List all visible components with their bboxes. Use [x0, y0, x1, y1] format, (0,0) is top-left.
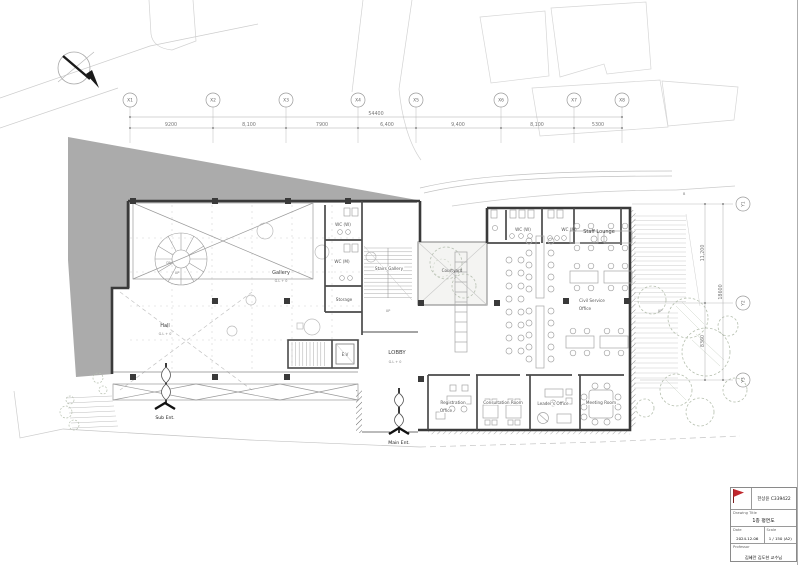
professor-label: Professor: [733, 545, 750, 549]
waiting-chairs-a: [506, 257, 524, 354]
grid-bubble-y2: Y2: [741, 300, 747, 307]
site-gray-mass: [68, 137, 417, 377]
label-lobby-level: G.L + 0: [389, 360, 402, 364]
label-civil-service-2: Office: [579, 306, 592, 311]
label-east-stair-up: UP: [658, 309, 663, 313]
student-name: 한상윤 C339422: [752, 488, 796, 509]
label-spiral-dn: DN: [166, 261, 172, 265]
dim-y-overall: 18600: [718, 284, 724, 299]
dim-x4-x5: 6,400: [380, 122, 394, 128]
label-wc-m-right: WC (M): [561, 227, 577, 232]
sub-entrance-doors: [162, 363, 171, 403]
label-consultation: Consultation Room: [483, 400, 523, 405]
grid-bubble-y1: Y1: [741, 201, 747, 208]
label-spiral-up: UP: [175, 271, 180, 275]
label-courtyard: Courtyard: [442, 268, 463, 273]
trees-east-hatch: [666, 302, 724, 400]
date-value: 2024.12.06: [731, 536, 764, 541]
floor-plan-canvas: X1 X2 X3 X4 X5 X6 X7 X8 9200 8,100 7900 …: [0, 0, 800, 565]
exterior-steps-east-upper: [634, 214, 700, 306]
label-hall: Hall: [160, 323, 170, 329]
label-gallery-level: G.L + 0: [275, 279, 288, 283]
label-storage: Storage: [336, 297, 353, 302]
label-lobby: LOBBY: [388, 350, 406, 356]
label-wc-w-right: WC (W): [515, 227, 531, 232]
exterior-steps-east-lower: [634, 313, 678, 388]
grid-bubble-x1: X1: [127, 98, 133, 104]
red-flag-icon: [731, 488, 745, 504]
entry-canopy: [113, 372, 358, 400]
grid-bubble-x4: X4: [355, 98, 361, 104]
grid-bubble-y3: Y3: [741, 377, 747, 384]
dim-x-overall: 54400: [368, 111, 383, 117]
sub-entrance-chevron: [155, 403, 175, 409]
drawing-sheet: X1 X2 X3 X4 X5 X6 X7 X8 9200 8,100 7900 …: [0, 0, 800, 565]
grid-bubble-x5: X5: [413, 98, 419, 104]
dim-x6-x7: 8,100: [530, 122, 544, 128]
road-label: B: [683, 192, 686, 196]
grid-bubble-x7: X7: [571, 98, 577, 104]
scale-value: 1 / 150 (A2): [765, 536, 797, 541]
north-arrow-icon: [58, 52, 99, 88]
label-registration-1: Registration: [440, 400, 466, 405]
dim-x2-x3: 8,100: [242, 122, 256, 128]
label-stairsgallery-up: UP: [386, 309, 391, 313]
hall-void-dashes: [120, 292, 252, 390]
label-stairs-gallery: Stairs Gallery: [375, 266, 404, 271]
dim-x7-x8: 5300: [592, 122, 604, 128]
label-meeting: Meeting Room: [586, 400, 616, 405]
dim-y2-y3: 8360: [700, 335, 706, 347]
label-civil-service-1: Civil Service: [579, 298, 605, 303]
title-block: 한상윤 C339422 Drawing Title 1층 평면도 Date 20…: [730, 487, 797, 562]
label-ev: E.V: [342, 352, 349, 357]
main-entrance-doors: [395, 388, 404, 433]
grid-bubble-x6: X6: [498, 98, 504, 104]
professor-value: 김혜란 김도현 교수님: [731, 555, 796, 561]
grid-bubble-x2: X2: [210, 98, 216, 104]
leaders-furniture: [538, 389, 573, 424]
school-logo: [731, 488, 752, 509]
walls-outer: [112, 201, 630, 430]
stairs-gallery-treads: [364, 246, 412, 300]
wall-hatch-south: [428, 431, 630, 434]
dim-x5-x6: 9,400: [451, 122, 465, 128]
furniture: [338, 208, 632, 425]
drawing-title-value: 1층 평면도: [731, 517, 796, 524]
label-sub-ent: Sub Ent.: [155, 415, 174, 421]
label-hall-level: G.L + 0: [159, 332, 172, 336]
date-label: Date: [733, 528, 742, 532]
label-main-ent: Main Ent.: [388, 440, 410, 446]
label-staff-lounge: Staff Lounge: [583, 229, 615, 235]
walls-interior: [325, 201, 624, 432]
waiting-chairs-b: [526, 236, 554, 368]
dim-x1-x2: 9200: [165, 122, 177, 128]
dim-x3-x4: 7900: [316, 122, 328, 128]
grid-bubble-x3: X3: [283, 98, 289, 104]
x-grid-dimensions: X1 X2 X3 X4 X5 X6 X7 X8 9200 8,100 7900 …: [123, 93, 629, 143]
scale-label: Scale: [767, 528, 777, 532]
dim-y1-y2: 11,200: [700, 245, 706, 262]
drawing-title-label: Drawing Title: [733, 511, 757, 515]
label-gallery: Gallery: [272, 270, 290, 276]
label-registration-2: Office: [440, 408, 453, 413]
label-leaders: Leader's Office: [537, 401, 569, 406]
building: [112, 198, 636, 434]
label-wc-w-left: WC (W): [335, 222, 351, 227]
courtyard: [418, 242, 487, 305]
label-wc-m-left: WC (M): [334, 259, 350, 264]
wall-hatch-entry-pier: [356, 390, 362, 433]
trees-east: [636, 286, 747, 426]
grid-bubble-x8: X8: [619, 98, 625, 104]
staff-lounge-furniture: [591, 236, 607, 242]
skylight-outline: [133, 203, 313, 279]
